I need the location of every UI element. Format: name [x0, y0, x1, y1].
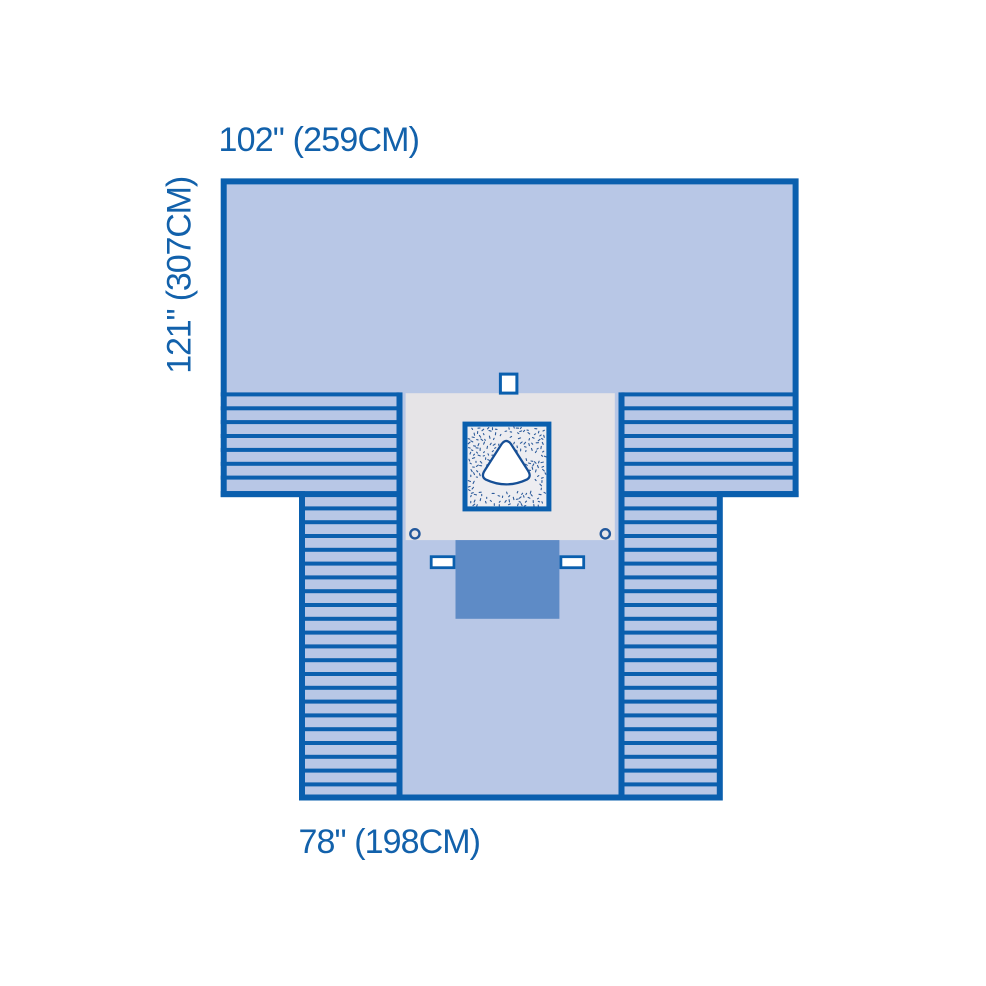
- svg-text:121" (307CM): 121" (307CM): [160, 176, 198, 374]
- svg-text:102" (259CM): 102" (259CM): [219, 121, 421, 159]
- svg-text:78" (198CM): 78" (198CM): [299, 823, 482, 861]
